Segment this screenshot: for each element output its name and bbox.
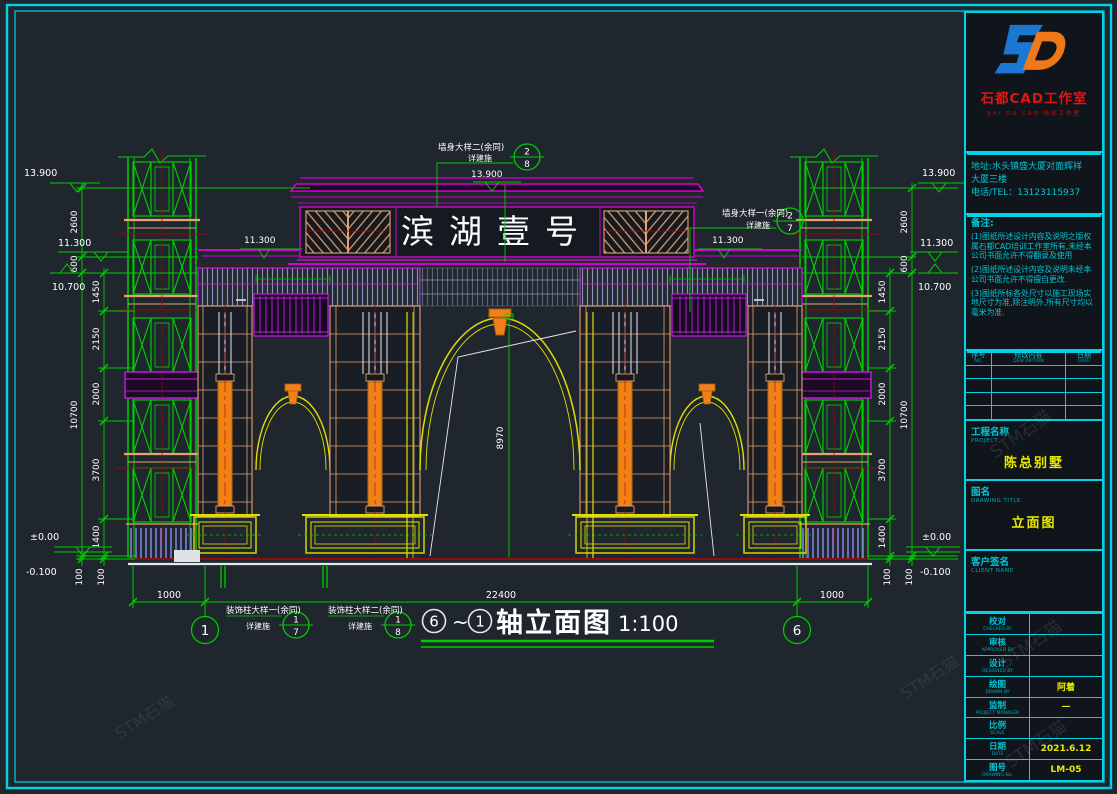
gate-sign-text: 滨湖壹号 [401,212,593,251]
gate-sign: 滨湖壹号 [288,178,706,264]
svg-text:墙身大样二(余同): 墙身大样二(余同) [438,142,504,153]
svg-text:详建施: 详建施 [246,621,270,631]
svg-text:~: ~ [452,610,469,634]
svg-text:13.900: 13.900 [922,168,955,179]
revision-table: 序号NO. 修改内容DESCRIPTION 日期DATE [966,351,1102,421]
elevation-markers-right: 13.900 11.300 10.700 ±0.00 -0.100 [906,168,968,578]
grid-bubble-1: 1 [201,623,210,639]
revision-row [966,366,1102,380]
signature-rows: 校对CHECKED BY 审核APPROVED BY 设计DESIGNED BY… [966,613,1102,780]
dimension-labels-right: 2600 600 10700 1450 2150 2000 3700 1400 … [878,210,915,585]
svg-text:6: 6 [429,613,439,631]
revision-header: 序号NO. 修改内容DESCRIPTION 日期DATE [966,351,1102,366]
svg-text:2600: 2600 [900,210,910,233]
watermark-text: STM石猫 [112,692,177,744]
svg-text:7: 7 [787,224,793,234]
title-block: 石都CAD工作室 SHI DU CAD 培训工作室 地址:水头镇盛大厦对面辉祥 … [964,11,1104,782]
field-designed-by: 设计DESIGNED BY [966,656,1102,677]
phone: 电话/TEL：13123115937 [971,187,1097,200]
svg-text:详建施: 详建施 [746,220,770,230]
field-scale: 比例SCALE [966,718,1102,739]
svg-text:1: 1 [293,616,299,626]
svg-text:轴立面图: 轴立面图 [496,607,612,639]
svg-text:10.700: 10.700 [52,282,85,293]
svg-text:7: 7 [293,628,299,638]
svg-text:-0.100: -0.100 [920,567,951,578]
svg-text:1400: 1400 [878,525,888,548]
field-approved-by: 审核APPROVED BY [966,635,1102,656]
address-line-2: 大厦三楼 [971,174,1097,187]
svg-text:3700: 3700 [878,458,888,481]
svg-text:2600: 2600 [70,210,80,233]
svg-text:2000: 2000 [92,382,102,405]
studio-name-pinyin: SHI DU CAD 培训工作室 [971,109,1097,117]
svg-text:8: 8 [395,628,401,638]
ground-lines [128,550,872,564]
notes-title: 备注: [971,218,1097,230]
svg-text:100: 100 [75,568,85,585]
project-section: 工程名称 PROJECT 陈总别墅 [966,421,1102,481]
drawing-title-value: 立面图 [971,512,1097,531]
svg-text:2150: 2150 [92,327,102,350]
svg-text:2: 2 [524,148,530,158]
drawing-axis-title: 6 ~ 1 轴立面图 1:100 [421,607,714,647]
svg-text:墙身大样一(余同): 墙身大样一(余同) [722,208,788,219]
svg-text:100: 100 [883,568,893,585]
left-tower [116,149,208,558]
svg-text:1000: 1000 [820,590,844,601]
grid-bubble-6: 6 [793,623,802,639]
svg-text:11.300: 11.300 [58,238,91,249]
svg-text:3700: 3700 [92,458,102,481]
note-2: (2)图纸所述设计内容及说明未经本公司书面允许不得擅自更改. [971,265,1097,284]
svg-text:2: 2 [787,212,793,222]
svg-text:详建施: 详建施 [348,621,372,631]
planters [186,515,814,553]
svg-text:8970: 8970 [496,426,506,449]
svg-text:600: 600 [900,255,910,272]
studio-header: 石都CAD工作室 SHI DU CAD 培训工作室 [966,13,1102,153]
svg-text:1:100: 1:100 [618,612,679,636]
svg-text:2000: 2000 [878,382,888,405]
svg-text:22400: 22400 [486,590,516,601]
svg-text:1400: 1400 [92,525,102,548]
cad-sheet: 滨湖壹号 2600 600 10700 1450 [0,0,1117,794]
revision-row [966,406,1102,419]
svg-text:11.300: 11.300 [712,236,744,246]
svg-text:±0.00: ±0.00 [30,532,59,543]
client-section: 客户签名 CLIENT NAME [966,551,1102,613]
svg-text:±0.00: ±0.00 [922,532,951,543]
svg-text:13.900: 13.900 [24,168,57,179]
svg-text:2150: 2150 [878,327,888,350]
address-line-1: 地址:水头镇盛大厦对面辉祥 [971,161,1097,174]
svg-text:100: 100 [905,568,915,585]
svg-text:1000: 1000 [157,590,181,601]
svg-text:1450: 1450 [878,280,888,303]
watermark-text: STM石猫 [897,652,962,704]
svg-text:13.900: 13.900 [471,170,503,180]
field-project-manager: 监制PROJECT MANAGER — [966,698,1102,719]
center-spandrel [420,268,580,306]
svg-text:-0.100: -0.100 [26,567,57,578]
svg-text:10.700: 10.700 [918,282,951,293]
studio-name: 石都CAD工作室 [971,87,1097,107]
svg-text:1: 1 [475,613,485,631]
notes-section: 备注: (1)图纸所述设计内容及说明之版权属石都CAD培训工作室所有,未经本公司… [966,215,1102,351]
svg-text:1450: 1450 [92,280,102,303]
svg-text:11.300: 11.300 [920,238,953,249]
svg-text:1: 1 [395,616,401,626]
svg-text:11.300: 11.300 [244,236,276,246]
field-drawn-by: 绘图DRAWN BY 阿着 [966,677,1102,698]
studio-logo [995,19,1073,81]
note-3: (3)图纸所标各处尺寸以施工现场实地尺寸为准,除注明外,所有尺寸均以毫米为准. [971,289,1097,318]
revision-row [966,379,1102,393]
dimension-labels-left: 2600 600 10700 1450 2150 2000 3700 1400 … [70,210,107,585]
svg-text:装饰柱大样一(余同): 装饰柱大样一(余同) [226,605,301,616]
ground-step [174,550,200,562]
field-checked-by: 校对CHECKED BY [966,614,1102,635]
field-date: 日期DATE 2021.6.12 [966,739,1102,760]
note-1: (1)图纸所述设计内容及说明之版权属石都CAD培训工作室所有,未经本公司书面允许… [971,232,1097,261]
svg-text:8: 8 [524,160,530,170]
svg-text:10700: 10700 [900,400,910,429]
project-name: 陈总别墅 [971,452,1097,471]
studio-address: 地址:水头镇盛大厦对面辉祥 大厦三楼 电话/TEL：13123115937 [966,153,1102,215]
svg-text:详建施: 详建施 [468,153,492,163]
field-drawing-number: 图号DRAWING No. LM-05 [966,760,1102,780]
svg-text:100: 100 [97,568,107,585]
svg-text:10700: 10700 [70,400,80,429]
svg-text:装饰柱大样二(余同): 装饰柱大样二(余同) [328,605,403,616]
revision-row [966,393,1102,407]
elevation-drawing: 滨湖壹号 2600 600 10700 1450 [0,0,1117,794]
drawing-title-section: 图名 DRAWING TITLE 立面图 [966,481,1102,551]
